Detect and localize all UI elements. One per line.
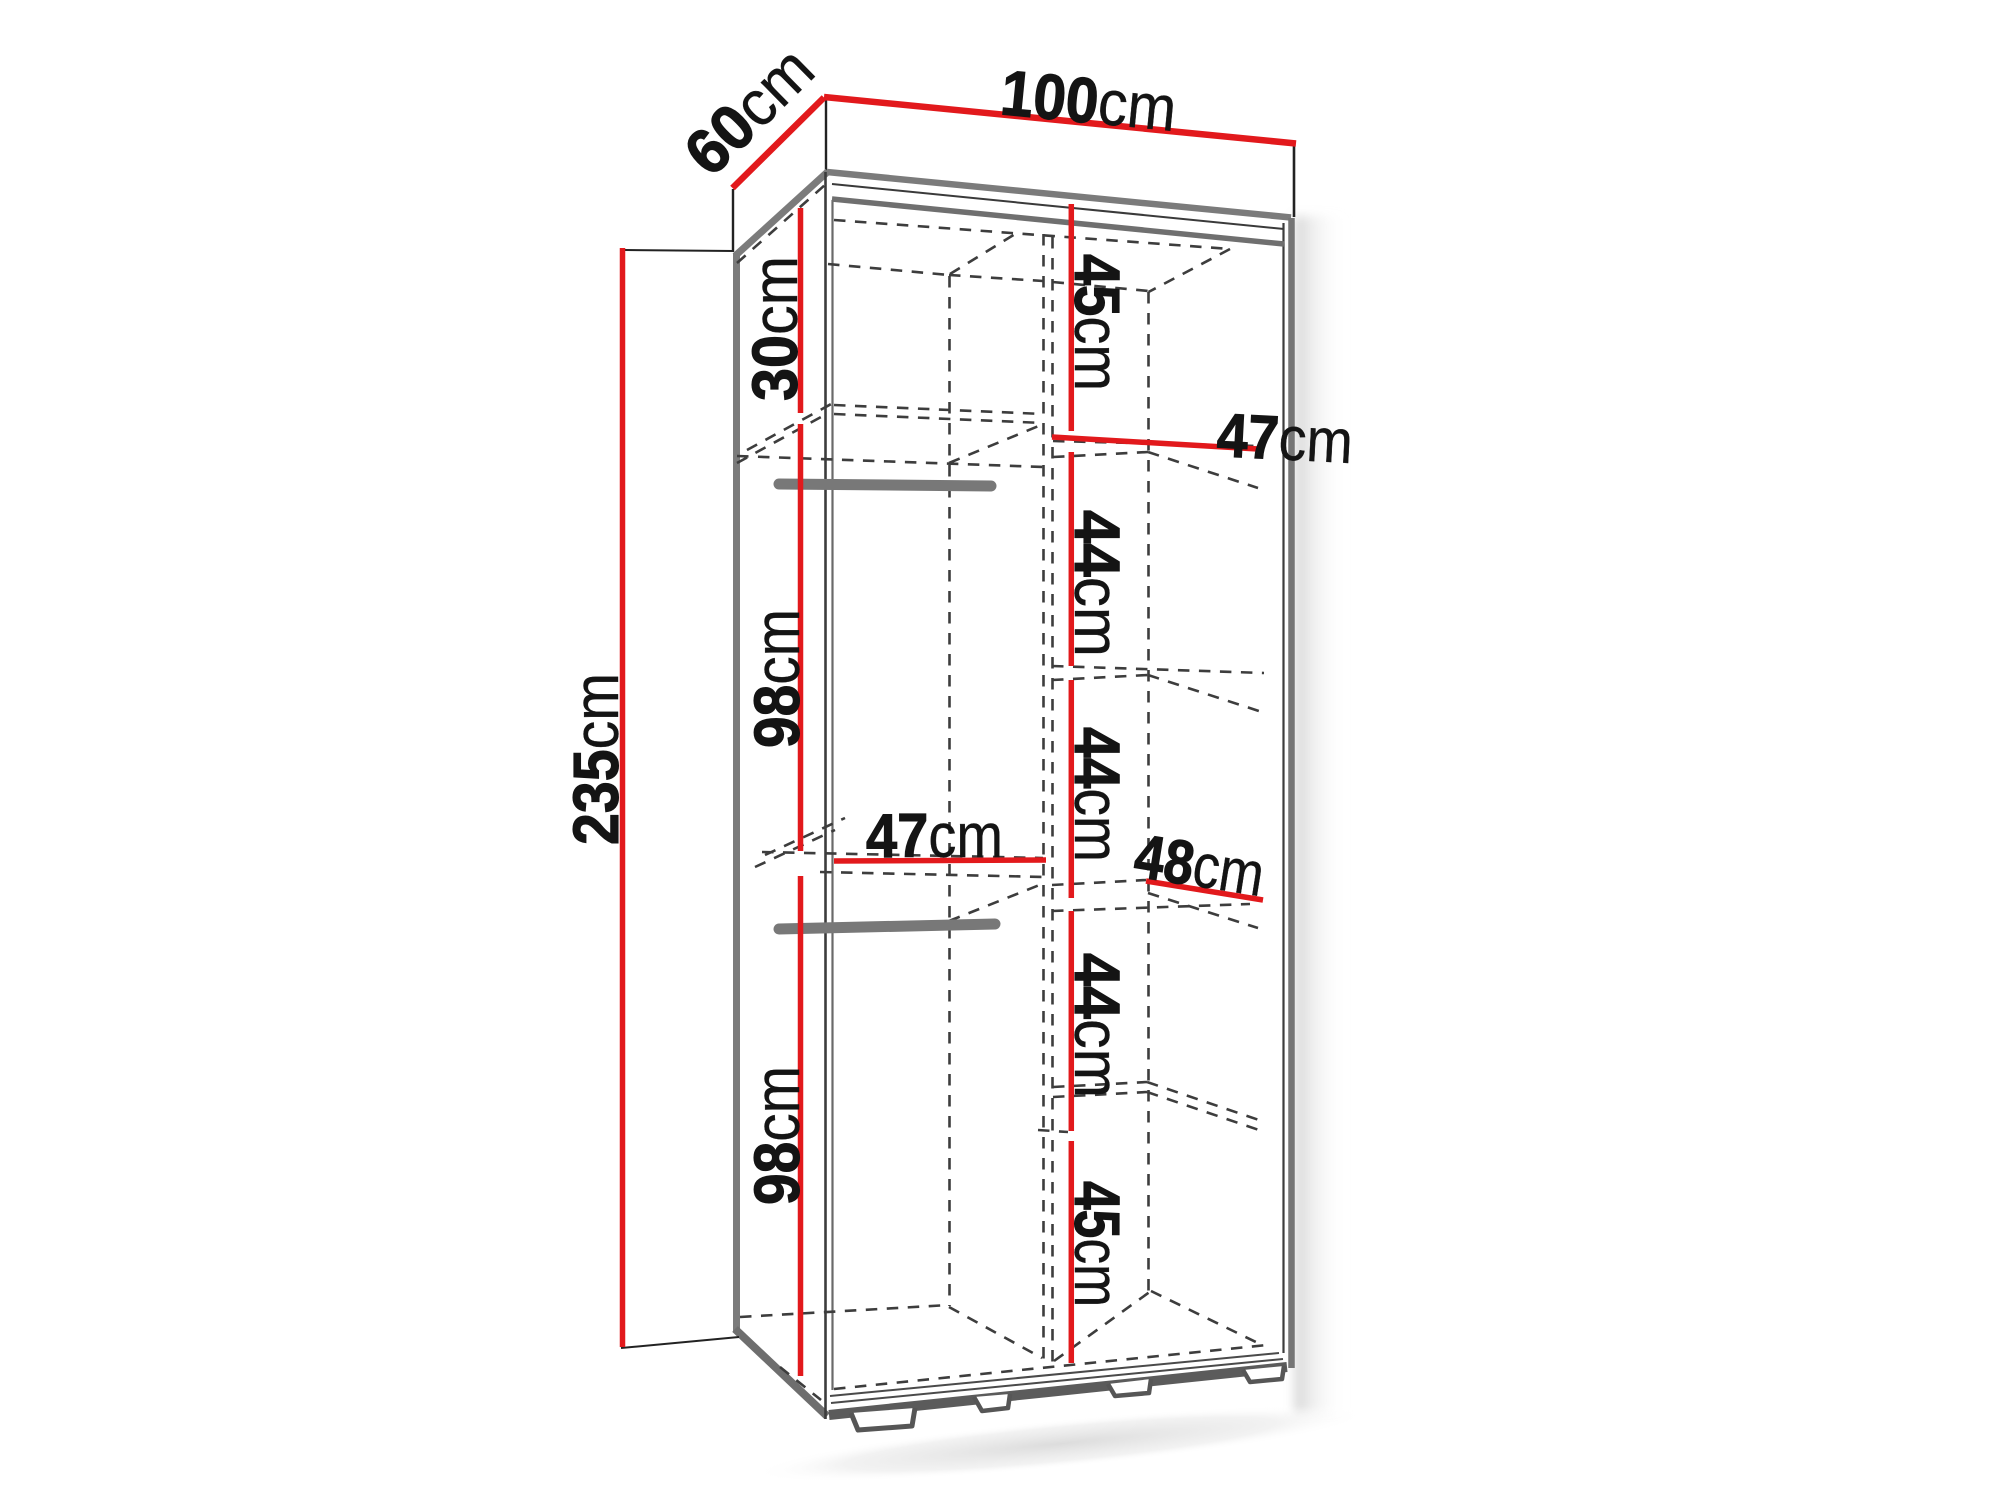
svg-text:44cm: 44cm [1061,953,1133,1098]
svg-text:47cm: 47cm [1215,401,1354,477]
svg-text:47cm: 47cm [866,802,1003,871]
svg-text:44cm: 44cm [1061,727,1133,862]
svg-text:98cm: 98cm [741,609,813,748]
svg-text:235cm: 235cm [560,673,632,845]
svg-text:30cm: 30cm [739,256,811,401]
svg-text:45cm: 45cm [1061,1181,1133,1307]
svg-text:45cm: 45cm [1061,254,1133,391]
svg-text:98cm: 98cm [741,1066,813,1205]
svg-text:44cm: 44cm [1061,510,1133,657]
